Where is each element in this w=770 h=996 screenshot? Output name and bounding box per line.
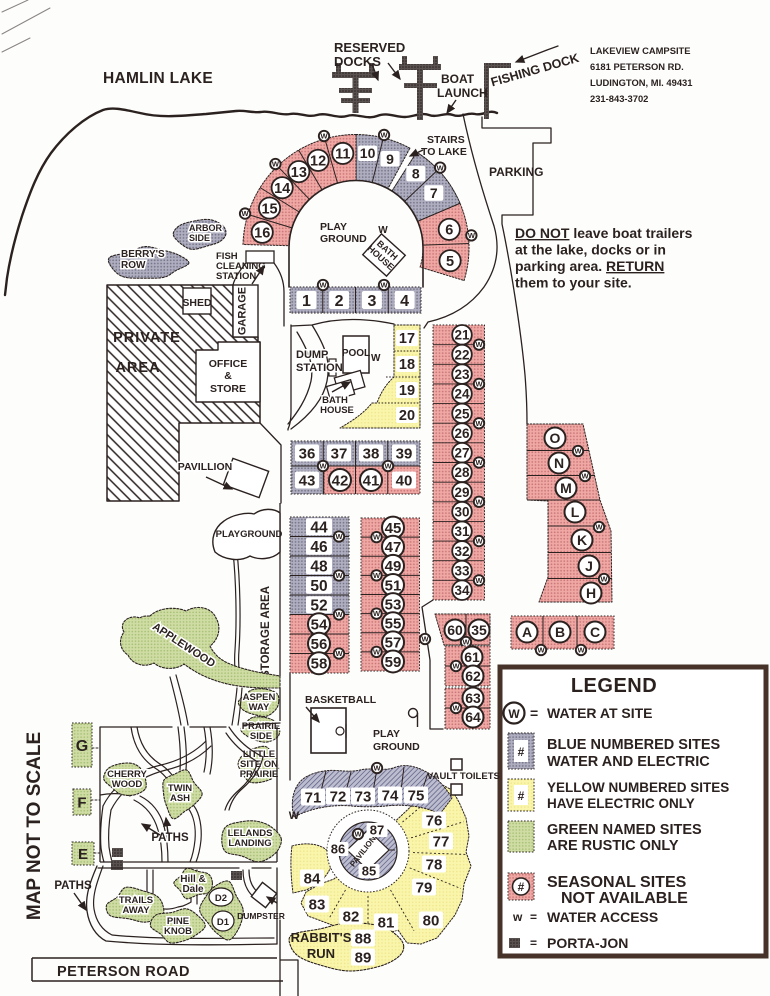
- svg-text:PATHS: PATHS: [54, 880, 92, 892]
- svg-text:19: 19: [399, 383, 415, 399]
- svg-text:27: 27: [454, 446, 469, 461]
- svg-text:E: E: [78, 846, 88, 863]
- svg-text:78: 78: [426, 856, 443, 873]
- svg-text:75: 75: [408, 787, 425, 804]
- svg-text:N: N: [554, 455, 564, 471]
- svg-text:D1: D1: [217, 917, 230, 928]
- svg-text:61: 61: [464, 649, 480, 665]
- svg-text:47: 47: [385, 539, 402, 556]
- svg-text:14: 14: [274, 181, 290, 197]
- svg-text:44: 44: [310, 519, 328, 536]
- svg-text:W: W: [373, 609, 381, 618]
- svg-text:W: W: [537, 646, 545, 655]
- svg-text:W: W: [475, 340, 483, 349]
- svg-text:#: #: [518, 880, 525, 894]
- svg-text:74: 74: [382, 787, 399, 804]
- svg-text:35: 35: [471, 622, 487, 638]
- svg-text:RESERVED: RESERVED: [334, 40, 405, 55]
- svg-text:W: W: [384, 462, 392, 471]
- svg-text:&: &: [224, 370, 232, 382]
- svg-text:PLAY: PLAY: [373, 728, 400, 740]
- svg-text:OFFICE: OFFICE: [209, 358, 248, 370]
- svg-text:PARKING: PARKING: [489, 165, 543, 179]
- svg-text:11: 11: [335, 147, 350, 163]
- svg-text:9: 9: [386, 151, 394, 167]
- svg-text:41: 41: [363, 472, 380, 489]
- svg-text:F: F: [77, 794, 86, 811]
- svg-text:16: 16: [254, 226, 270, 242]
- svg-text:STORE: STORE: [210, 383, 246, 395]
- svg-text:32: 32: [454, 544, 469, 559]
- svg-text:W: W: [335, 532, 343, 541]
- svg-text:W: W: [289, 810, 300, 822]
- svg-text:=: =: [530, 705, 538, 721]
- svg-text:W: W: [373, 647, 381, 656]
- svg-text:W: W: [319, 462, 327, 471]
- svg-text:W: W: [371, 353, 381, 364]
- svg-text:WAY: WAY: [249, 702, 270, 713]
- svg-text:w: w: [512, 910, 523, 924]
- svg-text:24: 24: [454, 387, 470, 402]
- svg-text:89: 89: [355, 949, 372, 966]
- svg-text:25: 25: [454, 406, 470, 421]
- svg-text:RUN: RUN: [307, 946, 335, 961]
- svg-text:C: C: [590, 624, 600, 640]
- svg-text:YELLOW NUMBERED SITES: YELLOW NUMBERED SITES: [547, 780, 729, 795]
- svg-text:29: 29: [454, 485, 469, 500]
- svg-text:W: W: [595, 523, 603, 532]
- svg-text:PETERSON ROAD: PETERSON ROAD: [57, 964, 190, 980]
- svg-text:85: 85: [362, 864, 376, 879]
- svg-text:RABBIT'S: RABBIT'S: [291, 930, 352, 945]
- svg-text:79: 79: [416, 879, 433, 896]
- svg-text:ARE RUSTIC ONLY: ARE RUSTIC ONLY: [547, 838, 679, 854]
- svg-text:53: 53: [385, 596, 402, 613]
- svg-text:W: W: [335, 610, 343, 619]
- svg-text:W: W: [475, 537, 483, 546]
- svg-text:W: W: [373, 533, 381, 542]
- svg-text:BOAT: BOAT: [441, 72, 475, 86]
- svg-text:77: 77: [433, 833, 450, 850]
- svg-text:56: 56: [311, 636, 328, 653]
- svg-text:82: 82: [343, 908, 360, 925]
- svg-text:GROUND: GROUND: [373, 741, 420, 753]
- svg-text:46: 46: [310, 539, 328, 556]
- svg-text:DUMPSTER: DUMPSTER: [237, 911, 285, 921]
- svg-text:W: W: [335, 649, 343, 658]
- svg-text:W: W: [421, 635, 429, 644]
- svg-text:31: 31: [454, 524, 470, 539]
- svg-text:ASH: ASH: [170, 793, 190, 804]
- svg-text:W: W: [335, 571, 343, 580]
- svg-text:20: 20: [399, 408, 415, 424]
- svg-text:DO NOT leave boat trailers: DO NOT leave boat trailers: [515, 225, 693, 241]
- svg-text:them to your site.: them to your site.: [515, 275, 632, 291]
- svg-text:52: 52: [310, 597, 327, 614]
- svg-text:SIDE: SIDE: [189, 233, 210, 243]
- svg-text:W: W: [378, 225, 388, 236]
- svg-text:L: L: [571, 504, 580, 520]
- svg-text:57: 57: [385, 635, 402, 652]
- svg-text:39: 39: [396, 445, 413, 462]
- svg-text:6181 PETERSON RD.: 6181 PETERSON RD.: [590, 61, 684, 72]
- svg-text:64: 64: [465, 709, 481, 725]
- svg-text:LEGEND: LEGEND: [571, 675, 657, 697]
- svg-text:81: 81: [378, 914, 395, 931]
- svg-text:WATER ACCESS: WATER ACCESS: [547, 909, 658, 925]
- svg-text:G: G: [76, 738, 88, 755]
- svg-text:BASKETBALL: BASKETBALL: [305, 694, 377, 706]
- svg-text:WATER AT SITE: WATER AT SITE: [547, 705, 653, 721]
- svg-text:D2: D2: [215, 893, 227, 904]
- svg-text:B: B: [555, 624, 565, 640]
- svg-text:AWAY: AWAY: [122, 905, 150, 916]
- svg-text:GREEN NAMED SITES: GREEN NAMED SITES: [547, 822, 702, 838]
- svg-text:23: 23: [454, 367, 470, 382]
- svg-text:STAIRS: STAIRS: [427, 134, 465, 146]
- svg-text:K: K: [577, 532, 587, 548]
- svg-text:10: 10: [360, 145, 376, 161]
- svg-text:4: 4: [400, 293, 409, 310]
- svg-text:15: 15: [261, 201, 277, 217]
- svg-text:PLAY: PLAY: [320, 221, 347, 233]
- svg-text:W: W: [581, 472, 589, 481]
- svg-text:M: M: [560, 480, 572, 496]
- svg-text:3: 3: [367, 293, 376, 310]
- svg-text:W: W: [475, 380, 483, 389]
- svg-text:58: 58: [311, 656, 328, 673]
- svg-text:PRIVATE: PRIVATE: [113, 330, 181, 346]
- svg-text:AREA: AREA: [115, 360, 160, 376]
- svg-text:#: #: [518, 789, 525, 803]
- svg-text:PAVILLION: PAVILLION: [178, 461, 232, 473]
- svg-text:A: A: [522, 624, 532, 640]
- svg-text:7: 7: [430, 185, 438, 201]
- svg-text:W: W: [452, 704, 460, 713]
- svg-text:#: #: [518, 745, 525, 759]
- svg-text:W: W: [373, 571, 381, 580]
- svg-text:PLAYGROUND: PLAYGROUND: [216, 529, 283, 540]
- svg-text:18: 18: [399, 357, 415, 373]
- svg-text:76: 76: [426, 812, 443, 829]
- svg-text:O: O: [550, 430, 561, 446]
- svg-text:SHED: SHED: [182, 297, 212, 309]
- svg-text:parking area. RETURN: parking area. RETURN: [515, 258, 664, 274]
- svg-text:W: W: [320, 132, 328, 141]
- svg-text:SIDE: SIDE: [250, 731, 272, 742]
- svg-text:W: W: [242, 209, 250, 218]
- svg-text:W: W: [373, 764, 381, 773]
- svg-text:W: W: [354, 830, 362, 839]
- svg-text:PRAIRIE: PRAIRIE: [240, 769, 279, 780]
- svg-text:ROW: ROW: [121, 260, 146, 271]
- svg-text:W: W: [475, 576, 483, 585]
- svg-text:43: 43: [299, 472, 316, 489]
- svg-text:HAVE ELECTRIC ONLY: HAVE ELECTRIC ONLY: [547, 796, 695, 811]
- svg-text:W: W: [319, 281, 327, 290]
- svg-text:1: 1: [302, 293, 311, 310]
- svg-text:59: 59: [385, 654, 402, 671]
- svg-text:LAKEVIEW CAMPSITE: LAKEVIEW CAMPSITE: [590, 45, 691, 56]
- svg-text:W: W: [462, 638, 470, 647]
- svg-text:POOL: POOL: [342, 348, 370, 359]
- svg-text:63: 63: [465, 690, 481, 706]
- svg-text:54: 54: [311, 617, 328, 634]
- svg-text:W: W: [380, 281, 388, 290]
- svg-text:86: 86: [331, 842, 345, 857]
- svg-text:231-843-3702: 231-843-3702: [590, 93, 648, 104]
- svg-text:71: 71: [305, 789, 322, 806]
- svg-text:Dale: Dale: [182, 884, 204, 895]
- svg-text:28: 28: [454, 465, 470, 480]
- svg-text:SEASONAL SITES: SEASONAL SITES: [547, 874, 687, 891]
- svg-text:H: H: [586, 585, 596, 601]
- svg-text:62: 62: [465, 668, 481, 684]
- svg-text:STORAGE AREA: STORAGE AREA: [260, 586, 272, 678]
- svg-text:GARAGE: GARAGE: [237, 287, 249, 335]
- svg-text:13: 13: [291, 165, 307, 181]
- svg-text:17: 17: [399, 331, 415, 347]
- svg-text:at the lake, docks or in: at the lake, docks or in: [515, 242, 666, 258]
- svg-text:LAUNCH: LAUNCH: [437, 86, 488, 100]
- svg-text:42: 42: [332, 472, 349, 489]
- svg-text:88: 88: [355, 930, 372, 947]
- svg-text:6: 6: [445, 223, 453, 239]
- svg-text:HAMLIN LAKE: HAMLIN LAKE: [103, 70, 213, 87]
- svg-text:J: J: [585, 558, 593, 574]
- svg-text:KNOB: KNOB: [164, 926, 192, 937]
- svg-text:30: 30: [454, 504, 469, 519]
- svg-text:84: 84: [304, 870, 321, 887]
- svg-text:33: 33: [454, 563, 470, 578]
- svg-text:STATION: STATION: [216, 271, 256, 282]
- svg-text:PORTA-JON: PORTA-JON: [547, 935, 628, 951]
- svg-text:72: 72: [330, 788, 347, 805]
- svg-text:W: W: [600, 575, 608, 584]
- svg-text:73: 73: [355, 788, 372, 805]
- svg-text:LUDINGTON, MI. 49431: LUDINGTON, MI. 49431: [590, 77, 692, 88]
- svg-text:55: 55: [385, 616, 402, 633]
- svg-text:80: 80: [423, 912, 440, 929]
- svg-text:W: W: [437, 163, 445, 172]
- svg-text:BLUE NUMBERED SITES: BLUE NUMBERED SITES: [547, 737, 721, 753]
- svg-text:GROUND: GROUND: [320, 233, 367, 245]
- svg-text:TO LAKE: TO LAKE: [421, 146, 467, 158]
- svg-text:=: =: [530, 936, 537, 950]
- svg-text:ARBOR: ARBOR: [189, 223, 222, 233]
- svg-text:W: W: [452, 662, 460, 671]
- svg-text:NOT AVAILABLE: NOT AVAILABLE: [561, 890, 688, 907]
- svg-text:WOOD: WOOD: [112, 779, 143, 790]
- svg-text:W: W: [574, 447, 582, 456]
- svg-text:W: W: [381, 131, 389, 140]
- svg-text:51: 51: [385, 577, 402, 594]
- svg-text:W: W: [468, 231, 476, 240]
- svg-text:WATER AND ELECTRIC: WATER AND ELECTRIC: [547, 754, 710, 770]
- svg-text:83: 83: [309, 896, 326, 913]
- svg-text:BERRY'S: BERRY'S: [121, 249, 165, 260]
- svg-text:W: W: [475, 419, 483, 428]
- svg-text:W: W: [577, 646, 585, 655]
- svg-text:LANDING: LANDING: [228, 838, 271, 849]
- svg-text:22: 22: [454, 347, 469, 362]
- svg-text:DUMP: DUMP: [296, 349, 328, 361]
- svg-text:2: 2: [335, 293, 344, 310]
- svg-text:34: 34: [454, 583, 470, 598]
- svg-text:60: 60: [447, 622, 463, 638]
- svg-text:49: 49: [385, 558, 402, 575]
- svg-text:8: 8: [412, 166, 420, 182]
- svg-text:26: 26: [454, 426, 470, 441]
- svg-text:=: =: [530, 910, 537, 924]
- svg-text:87: 87: [370, 823, 384, 838]
- svg-text:12: 12: [310, 154, 326, 170]
- svg-text:VAULT TOILETS: VAULT TOILETS: [427, 771, 500, 782]
- svg-text:40: 40: [396, 472, 413, 489]
- svg-text:STATION: STATION: [296, 362, 343, 374]
- svg-text:MAP NOT TO SCALE: MAP NOT TO SCALE: [24, 732, 45, 920]
- svg-text:45: 45: [385, 520, 402, 537]
- svg-text:DOCKS: DOCKS: [334, 54, 381, 69]
- svg-text:5: 5: [446, 254, 454, 270]
- svg-text:W: W: [508, 707, 520, 721]
- svg-text:36: 36: [299, 445, 316, 462]
- svg-text:21: 21: [454, 328, 470, 343]
- svg-text:W: W: [475, 458, 483, 467]
- svg-text:50: 50: [310, 578, 327, 595]
- svg-text:HOUSE: HOUSE: [320, 405, 354, 416]
- svg-text:48: 48: [310, 558, 328, 575]
- svg-text:37: 37: [331, 445, 348, 462]
- svg-text:38: 38: [363, 445, 380, 462]
- svg-text:W: W: [475, 497, 483, 506]
- svg-text:W: W: [272, 160, 280, 169]
